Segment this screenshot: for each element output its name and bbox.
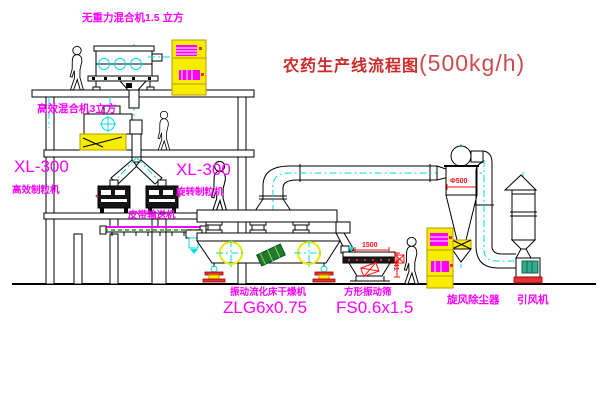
dim-screen-height: 341 (392, 259, 399, 271)
label-fan: 引风机 (517, 295, 549, 306)
granulator-left (96, 180, 130, 227)
dryer-top-stubs (206, 222, 350, 233)
y-chute (111, 157, 162, 184)
worker-figure-4 (404, 237, 418, 284)
dim-cyclone-diameter: Φ500 (450, 178, 467, 185)
label-screen-name: 方形振动筛 (344, 288, 392, 298)
control-cabinet-2 (427, 228, 453, 288)
label-belt-conveyor: 皮带输送机 (128, 211, 176, 221)
induced-draft-fan (514, 258, 542, 283)
label-granulator-mid-model: XL-300 (176, 161, 231, 178)
control-cabinet-1 (172, 40, 206, 95)
label-granulator-left-name: 高效制粒机 (12, 186, 60, 196)
spring-mount-right (313, 263, 335, 282)
label-floor2-mixer: 高效混合机3立方 (37, 104, 116, 115)
label-cyclone: 旋风除尘器 (447, 295, 500, 306)
label-gravity-mixer: 无重力混合机1.5 立方 (82, 13, 184, 24)
worker-figure-1 (70, 46, 83, 90)
flow-diagram-canvas: 农药生产线流程图(500kg/h) 无重力混合机1.5 立方 高效混合机3立方 … (0, 0, 600, 403)
label-granulator-mid-name: 旋转制粒机 (176, 188, 224, 198)
diagram-title-text: 农药生产线流程图 (283, 58, 419, 75)
dim-screen-length: 1500 (362, 242, 378, 249)
label-dryer-model: ZLG6x0.75 (223, 299, 307, 316)
fluid-bed-dryer (197, 210, 354, 282)
spring-mount-left (203, 263, 225, 282)
label-screen-model: FS0.6x1.5 (336, 299, 414, 316)
diagram-title-capacity: (500kg/h) (419, 50, 525, 76)
label-granulator-left-model: XL-300 (14, 158, 69, 175)
rotary-valve (452, 240, 471, 249)
diagram-title: 农药生产线流程图(500kg/h) (283, 52, 525, 75)
label-dryer-name: 振动流化床干燥机 (230, 288, 306, 298)
worker-figure-2 (158, 111, 170, 150)
